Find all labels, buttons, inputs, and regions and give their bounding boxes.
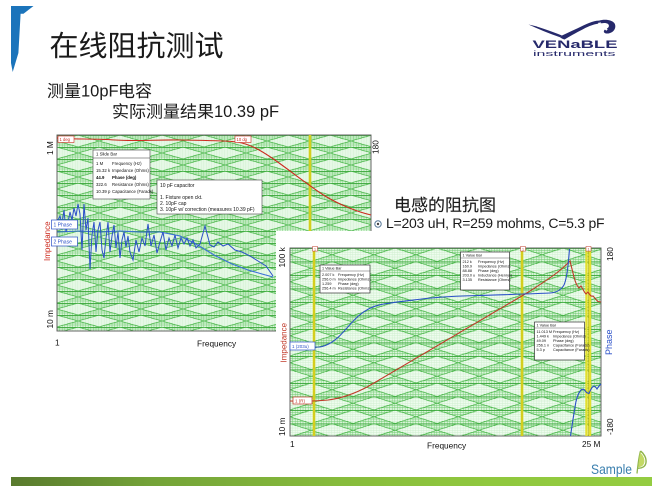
svg-text:Frequency (Hz): Frequency (Hz) — [553, 330, 580, 334]
svg-text:Capacitance (Farads): Capacitance (Farads) — [553, 344, 590, 348]
svg-text:11.013 M: 11.013 M — [537, 330, 553, 334]
svg-text:Impedance (Ohms): Impedance (Ohms) — [338, 278, 371, 282]
svg-text:212 k: 212 k — [463, 260, 472, 264]
svg-text:Frequency: Frequency — [427, 441, 467, 451]
svg-text:1.449 k: 1.449 k — [537, 335, 550, 339]
svg-text:Phase (deg): Phase (deg) — [553, 339, 574, 343]
svg-text:Phase (deg): Phase (deg) — [338, 282, 359, 286]
svg-text:256.4 m: 256.4 m — [322, 287, 336, 291]
svg-text:1 Value Bar: 1 Value Bar — [322, 267, 342, 271]
svg-text:Frequency: Frequency — [197, 339, 237, 349]
svg-text:3.135: 3.135 — [463, 278, 473, 282]
svg-text:Frequency (Hz): Frequency (Hz) — [478, 260, 505, 264]
svg-text:203.0 u: 203.0 u — [463, 274, 476, 278]
svg-text:Capacitance (Farads): Capacitance (Farads) — [553, 348, 590, 352]
svg-text:1 Value Bar: 1 Value Bar — [463, 254, 483, 258]
svg-text:1 (R): 1 (R) — [295, 399, 306, 404]
svg-text:Impedance (Ohms): Impedance (Ohms) — [553, 335, 586, 339]
svg-text:1.259: 1.259 — [322, 282, 332, 286]
svg-text:1: 1 — [522, 247, 524, 251]
svg-text:5.3 p: 5.3 p — [537, 348, 545, 352]
svg-text:2.007 k: 2.007 k — [322, 273, 335, 277]
svg-text:1: 1 — [588, 247, 590, 251]
svg-text:256.0 m: 256.0 m — [322, 278, 336, 282]
svg-text:10 m: 10 m — [45, 310, 55, 329]
svg-text:88.88: 88.88 — [463, 269, 473, 273]
svg-text:180: 180 — [605, 247, 615, 261]
svg-text:100 k: 100 k — [277, 246, 287, 267]
svg-text:Resistance (Ohms): Resistance (Ohms) — [338, 287, 371, 291]
svg-text:160.9: 160.9 — [463, 265, 473, 269]
svg-text:1 (203u): 1 (203u) — [292, 344, 309, 349]
svg-text:1 Value Bar: 1 Value Bar — [537, 324, 557, 328]
svg-text:Impedance (Ohms): Impedance (Ohms) — [478, 265, 511, 269]
svg-text:-180: -180 — [605, 418, 615, 435]
svg-text:Resistance (Ohms): Resistance (Ohms) — [478, 278, 511, 282]
svg-text:10 m: 10 m — [277, 417, 287, 436]
svg-text:Phase (deg): Phase (deg) — [478, 269, 499, 273]
svg-text:1: 1 — [55, 338, 60, 348]
svg-text:256.1 n: 256.1 n — [537, 344, 550, 348]
svg-text:1: 1 — [314, 247, 316, 251]
svg-text:Frequency (Hz): Frequency (Hz) — [338, 273, 365, 277]
svg-text:Sample: Sample — [591, 461, 632, 477]
svg-text:49.09: 49.09 — [537, 339, 547, 343]
svg-text:Impedance: Impedance — [280, 322, 289, 362]
svg-text:Inductance (Henrys): Inductance (Henrys) — [478, 274, 513, 278]
svg-text:2 Phase: 2 Phase — [54, 240, 73, 246]
svg-text:Phase: Phase — [604, 329, 614, 355]
svg-text:1: 1 — [290, 439, 295, 449]
